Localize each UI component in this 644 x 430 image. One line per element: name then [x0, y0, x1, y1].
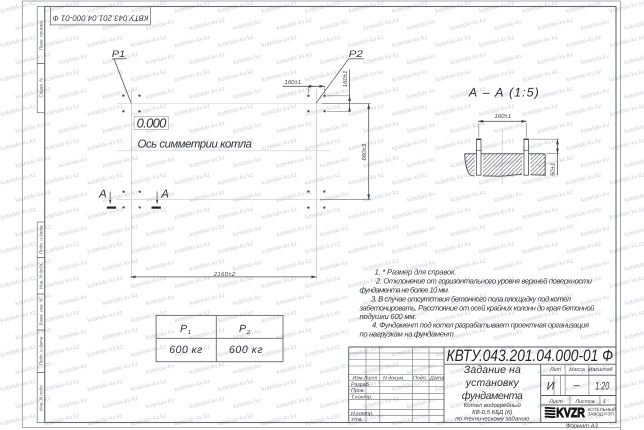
- svg-text:Перв. примен.: Перв. примен.: [39, 20, 44, 51]
- svg-text:КВ-0,5 КБД (К): КВ-0,5 КБД (К): [472, 409, 512, 416]
- svg-text:А: А: [98, 188, 107, 200]
- svg-text:1:20: 1:20: [595, 381, 610, 393]
- svg-text:Подп. и дата: Подп. и дата: [39, 336, 44, 365]
- svg-text:Т.контр.: Т.контр.: [351, 395, 372, 401]
- svg-text:600 кг: 600 кг: [229, 344, 263, 356]
- svg-text:2: 2: [246, 329, 251, 336]
- svg-text:160±1: 160±1: [342, 71, 349, 88]
- svg-text:160±1: 160±1: [285, 79, 302, 86]
- svg-text:Задание на: Задание на: [464, 364, 521, 376]
- svg-text:по нагрузкам на фундамент.: по нагрузкам на фундамент.: [360, 330, 456, 339]
- svg-text:Подп. и дата: Подп. и дата: [39, 225, 44, 254]
- svg-text:Лист: Лист: [548, 399, 563, 405]
- svg-text:50±1: 50±1: [550, 163, 557, 176]
- svg-text:ЗАВОД РЭП: ЗАВОД РЭП: [588, 412, 614, 417]
- svg-text:Масштаб: Масштаб: [588, 367, 614, 373]
- svg-text:Взам. инв. N: Взам. инв. N: [39, 298, 44, 325]
- svg-text:Изм.Лист: Изм.Лист: [353, 376, 379, 382]
- svg-text:P: P: [180, 323, 187, 335]
- svg-text:фундамента не более 10 мм.: фундамента не более 10 мм.: [360, 285, 450, 294]
- svg-text:N докум.: N докум.: [383, 376, 404, 382]
- svg-text:Инв. N подл.: Инв. N подл.: [39, 384, 44, 411]
- svg-text:2160±2: 2160±2: [213, 271, 236, 278]
- svg-text:Листов: Листов: [574, 399, 595, 405]
- svg-text:КВТУ.043.201.04.000-01 Ф: КВТУ.043.201.04.000-01 Ф: [447, 347, 614, 365]
- svg-text:Ось симметрии котла: Ось симметрии котла: [138, 138, 253, 150]
- svg-text:P: P: [239, 323, 246, 335]
- svg-text:160±1: 160±1: [494, 113, 511, 120]
- svg-text:по техническому заданию: по техническому заданию: [455, 415, 530, 422]
- svg-text:забетонировать. Расстояние от: забетонировать. Расстояние от осей крайн…: [359, 303, 596, 312]
- svg-text:Лит: Лит: [549, 367, 562, 373]
- svg-text:Инв. N дубл.: Инв. N дубл.: [39, 263, 44, 290]
- svg-text:1. * Размер для справок.: 1. * Размер для справок.: [375, 267, 457, 276]
- svg-text:Подп.: Подп.: [413, 376, 427, 382]
- svg-text:Формат А3: Формат А3: [566, 422, 598, 429]
- svg-text:–: –: [572, 380, 580, 392]
- svg-text:4. Фундамент под котел разраба: 4. Фундамент под котел разрабатывает про…: [372, 321, 589, 330]
- svg-text:А: А: [160, 188, 169, 200]
- svg-text:KVZR: KVZR: [556, 405, 585, 420]
- svg-text:1: 1: [188, 329, 191, 336]
- svg-text:Пров.: Пров.: [351, 388, 365, 394]
- svg-text:Утв.: Утв.: [351, 417, 363, 423]
- svg-text:660±3: 660±3: [361, 143, 368, 160]
- svg-text:P2: P2: [349, 49, 364, 60]
- svg-text:600 кг: 600 кг: [169, 344, 202, 356]
- svg-text:установку: установку: [465, 377, 520, 389]
- svg-text:P1: P1: [112, 49, 125, 60]
- svg-text:3. В случае отсутствия бетонно: 3. В случае отсутствия бетонного пола пл…: [371, 294, 572, 303]
- svg-text:КВТУ.043.201.04.000-01 Ф: КВТУ.043.201.04.000-01 Ф: [53, 13, 149, 22]
- svg-text:И: И: [547, 381, 555, 393]
- svg-text:фундамента: фундамента: [462, 390, 523, 402]
- svg-text:0.000: 0.000: [137, 116, 168, 131]
- svg-text:Дата: Дата: [429, 376, 444, 382]
- svg-text:Масса: Масса: [569, 367, 585, 373]
- svg-text:А – А (1:5): А – А (1:5): [468, 85, 539, 99]
- svg-text:Разраб.: Разраб.: [351, 382, 370, 388]
- svg-text:1: 1: [603, 399, 606, 405]
- svg-text:Котел водогрейный: Котел водогрейный: [464, 402, 522, 409]
- svg-text:2. Отклонение от горизонтально: 2. Отклонение от горизонтального уровня …: [375, 276, 593, 285]
- svg-text:Справ. N: Справ. N: [39, 78, 44, 98]
